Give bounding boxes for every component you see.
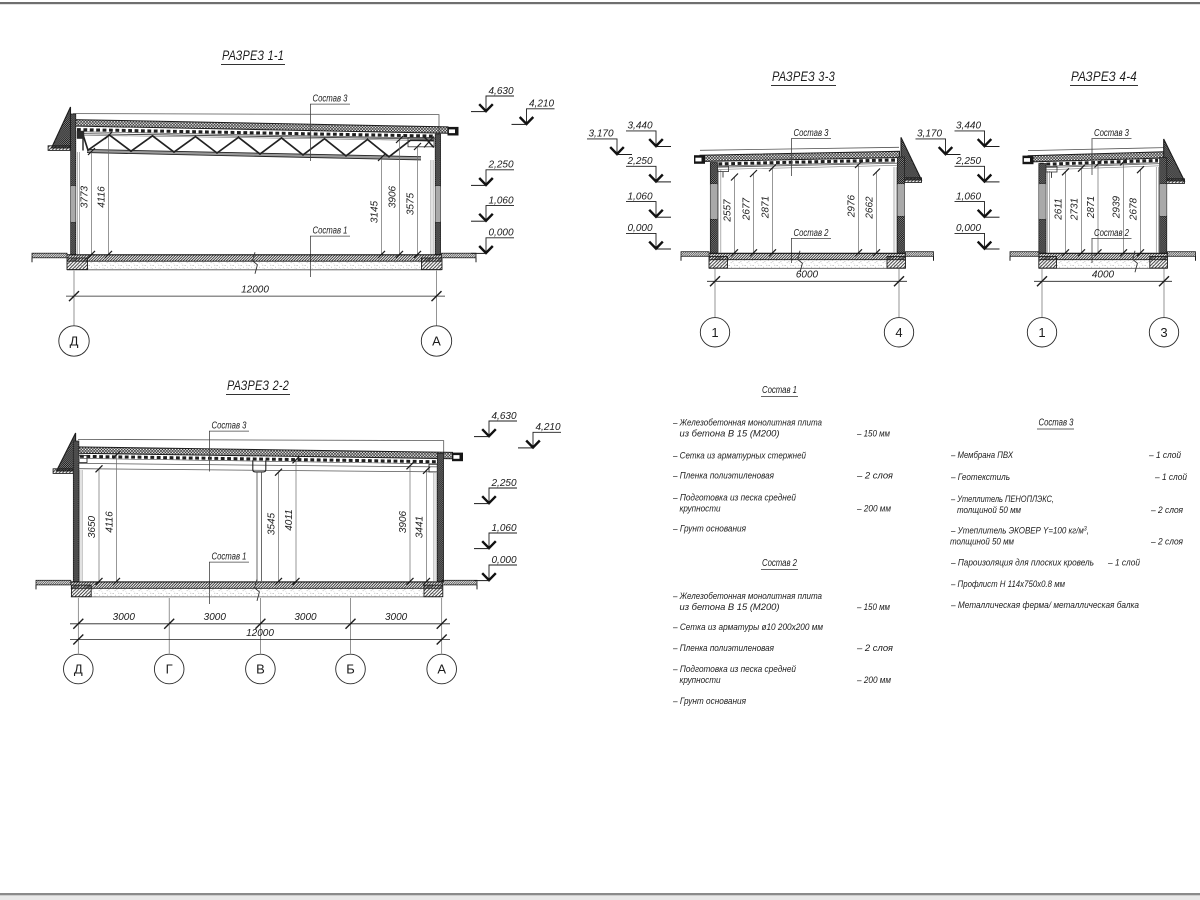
svg-text:А: А — [432, 334, 441, 349]
svg-text:3773: 3773 — [80, 185, 91, 208]
svg-text:2976: 2976 — [847, 194, 858, 218]
svg-text:2662: 2662 — [865, 196, 876, 220]
svg-text:– 200 мм: – 200 мм — [856, 675, 891, 686]
svg-text:0,000: 0,000 — [627, 223, 652, 234]
svg-text:3,170: 3,170 — [917, 129, 942, 140]
svg-text:4000: 4000 — [1092, 270, 1115, 281]
svg-text:– 1 слой: – 1 слой — [1148, 450, 1181, 461]
svg-text:РАЗРЕЗ 1-1: РАЗРЕЗ 1-1 — [222, 48, 284, 63]
svg-text:6000: 6000 — [796, 270, 819, 281]
svg-text:2731: 2731 — [1070, 198, 1081, 221]
svg-text:толщиной 50 мм: толщиной 50 мм — [957, 505, 1021, 516]
svg-text:2678: 2678 — [1129, 197, 1140, 221]
svg-text:толщиной 50 мм: толщиной 50 мм — [950, 537, 1014, 548]
svg-text:Состав 2: Состав 2 — [762, 558, 797, 569]
svg-text:– 1 слой: – 1 слой — [1107, 558, 1140, 569]
svg-text:– Сетка из арматуры ø10 200x20: – Сетка из арматуры ø10 200x200 мм — [672, 622, 823, 633]
svg-text:0,000: 0,000 — [488, 228, 513, 239]
svg-text:– 150 мм: – 150 мм — [856, 429, 890, 440]
svg-text:3,440: 3,440 — [627, 121, 652, 132]
svg-text:– 2 слоя: – 2 слоя — [1150, 537, 1183, 548]
svg-text:– Сетка из арматурных стержней: – Сетка из арматурных стержней — [672, 451, 806, 462]
svg-text:2939: 2939 — [1112, 195, 1123, 219]
svg-text:В: В — [256, 662, 265, 677]
svg-text:2677: 2677 — [742, 197, 753, 221]
svg-text:– Утеплитель ПЕНОПЛЭКС,: – Утеплитель ПЕНОПЛЭКС, — [950, 494, 1054, 505]
svg-text:2,250: 2,250 — [487, 160, 513, 171]
svg-text:– Пленка полиэтиленовая: – Пленка полиэтиленовая — [672, 471, 774, 482]
svg-text:– Подготовка из песка средней: – Подготовка из песка средней — [672, 493, 796, 504]
svg-text:3441: 3441 — [415, 516, 426, 538]
svg-text:12000: 12000 — [246, 628, 274, 639]
svg-text:4,210: 4,210 — [535, 422, 560, 433]
svg-text:из бетона В 15 (М200): из бетона В 15 (М200) — [680, 429, 780, 440]
svg-text:3145: 3145 — [370, 200, 381, 223]
svg-text:Состав 3: Состав 3 — [1039, 418, 1074, 429]
svg-text:3000: 3000 — [385, 612, 408, 623]
svg-text:крупности: крупности — [680, 504, 722, 515]
svg-text:4: 4 — [895, 325, 902, 340]
svg-text:– Грунт основания: – Грунт основания — [672, 696, 746, 707]
svg-text:– Профлист Н 114x750x0.8 мм: – Профлист Н 114x750x0.8 мм — [950, 579, 1065, 590]
svg-text:– Геотекстиль: – Геотекстиль — [950, 472, 1010, 483]
svg-text:2871: 2871 — [1086, 196, 1097, 219]
svg-text:– Металлическая ферма/ металли: – Металлическая ферма/ металлическая бал… — [950, 600, 1139, 611]
svg-text:4,630: 4,630 — [491, 411, 516, 422]
svg-text:1: 1 — [1038, 325, 1045, 340]
svg-text:0,000: 0,000 — [956, 223, 981, 234]
svg-text:Состав 1: Состав 1 — [212, 552, 247, 563]
svg-text:4011: 4011 — [284, 509, 295, 531]
svg-text:Состав 3: Состав 3 — [1094, 128, 1129, 139]
svg-text:РАЗРЕЗ 3-3: РАЗРЕЗ 3-3 — [772, 69, 835, 84]
svg-text:– 200 мм: – 200 мм — [856, 504, 891, 515]
svg-text:крупности: крупности — [680, 675, 722, 686]
svg-text:– 150 мм: – 150 мм — [856, 602, 890, 613]
svg-text:3,170: 3,170 — [588, 129, 613, 140]
svg-text:Б: Б — [346, 662, 355, 677]
svg-text:2871: 2871 — [761, 196, 772, 219]
svg-text:3650: 3650 — [87, 515, 98, 538]
svg-text:3,440: 3,440 — [956, 121, 981, 132]
svg-text:Состав 3: Состав 3 — [313, 94, 348, 105]
svg-text:4116: 4116 — [97, 186, 108, 208]
svg-text:– 2 слоя: – 2 слоя — [856, 471, 893, 482]
svg-text:Состав 1: Состав 1 — [762, 385, 797, 396]
svg-text:Состав 3: Состав 3 — [212, 421, 247, 432]
svg-text:2611: 2611 — [1054, 198, 1065, 221]
svg-text:3000: 3000 — [204, 612, 227, 623]
svg-text:– Железобетонная монолитная п: – Железобетонная монолитная плита — [672, 418, 822, 429]
svg-text:4,630: 4,630 — [488, 86, 513, 97]
svg-text:3906: 3906 — [388, 185, 399, 208]
svg-text:– Пароизоляция для плоских кро: – Пароизоляция для плоских кровель — [950, 558, 1094, 569]
svg-text:12000: 12000 — [241, 285, 269, 296]
svg-text:0,000: 0,000 — [491, 555, 516, 566]
svg-text:Состав 2: Состав 2 — [794, 228, 829, 239]
svg-text:– 1 слой: – 1 слой — [1154, 472, 1187, 483]
svg-text:– Мембрана ПВХ: – Мембрана ПВХ — [950, 450, 1013, 461]
svg-text:2,250: 2,250 — [490, 478, 516, 489]
svg-text:2557: 2557 — [723, 199, 734, 223]
svg-text:– Грунт основания: – Грунт основания — [672, 524, 746, 535]
svg-text:А: А — [437, 662, 446, 677]
svg-text:Состав 2: Состав 2 — [1094, 228, 1129, 239]
svg-text:3906: 3906 — [398, 510, 409, 533]
svg-text:РАЗРЕЗ 4-4: РАЗРЕЗ 4-4 — [1071, 69, 1137, 84]
svg-text:4,210: 4,210 — [529, 99, 554, 110]
svg-text:Состав 3: Состав 3 — [794, 128, 829, 139]
svg-text:– 2 слоя: – 2 слоя — [856, 643, 893, 654]
svg-text:– Железобетонная монолитная п: – Железобетонная монолитная плита — [672, 591, 822, 602]
svg-text:1,060: 1,060 — [488, 195, 513, 206]
svg-text:– Подготовка из песка средней: – Подготовка из песка средней — [672, 664, 796, 675]
svg-text:1,060: 1,060 — [956, 191, 981, 202]
svg-text:3545: 3545 — [267, 512, 278, 535]
svg-text:2,250: 2,250 — [955, 156, 981, 167]
svg-text:– Утеплитель ЭКОВЕР Y=100 кг/м: – Утеплитель ЭКОВЕР Y=100 кг/м3, — [950, 525, 1089, 537]
svg-text:Д: Д — [70, 334, 79, 349]
svg-text:Г: Г — [166, 662, 173, 677]
svg-text:3000: 3000 — [294, 612, 317, 623]
svg-text:1,060: 1,060 — [491, 523, 516, 534]
svg-text:3000: 3000 — [113, 612, 136, 623]
svg-text:из бетона В 15 (М200): из бетона В 15 (М200) — [680, 602, 780, 613]
svg-text:3575: 3575 — [406, 192, 417, 215]
svg-text:– Пленка полиэтиленовая: – Пленка полиэтиленовая — [672, 643, 774, 654]
svg-text:РАЗРЕЗ 2-2: РАЗРЕЗ 2-2 — [227, 378, 289, 393]
svg-text:– 2 слоя: – 2 слоя — [1150, 505, 1183, 516]
svg-text:Д: Д — [74, 662, 83, 677]
svg-text:1,060: 1,060 — [627, 191, 652, 202]
svg-text:4116: 4116 — [105, 511, 116, 533]
svg-text:Состав 1: Состав 1 — [313, 226, 348, 237]
svg-text:2,250: 2,250 — [626, 156, 652, 167]
svg-text:1: 1 — [711, 325, 718, 340]
svg-text:3: 3 — [1160, 325, 1167, 340]
